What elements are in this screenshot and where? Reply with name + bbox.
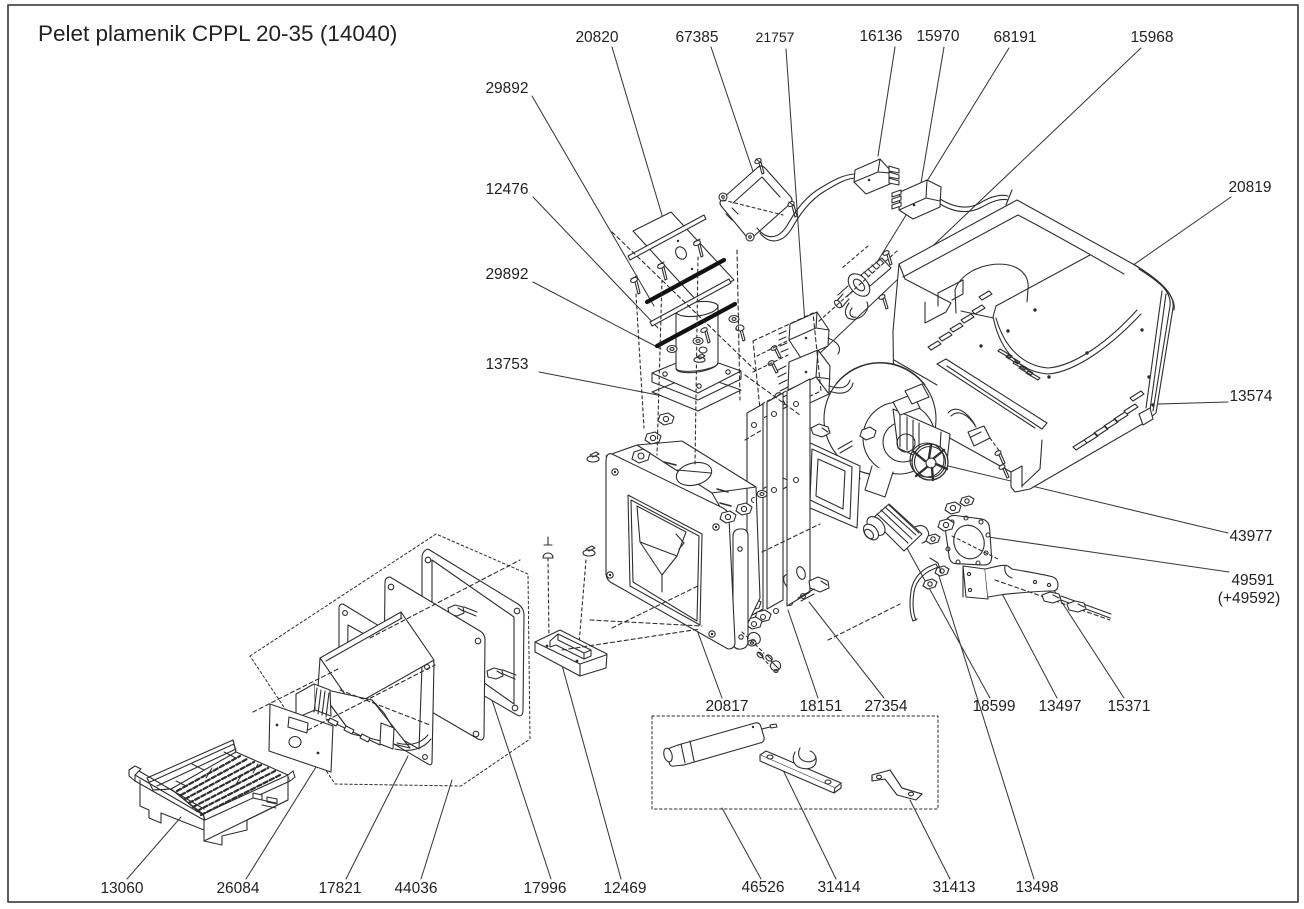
svg-text:13497: 13497 bbox=[1038, 698, 1081, 715]
svg-text:16136: 16136 bbox=[859, 28, 902, 45]
svg-text:15970: 15970 bbox=[916, 28, 959, 45]
svg-text:13498: 13498 bbox=[1015, 879, 1058, 896]
svg-text:12469: 12469 bbox=[603, 880, 646, 897]
svg-text:29892: 29892 bbox=[485, 80, 528, 97]
svg-text:12476: 12476 bbox=[485, 181, 528, 198]
svg-text:13574: 13574 bbox=[1229, 388, 1272, 405]
svg-text:(+49592): (+49592) bbox=[1218, 590, 1280, 607]
svg-text:20817: 20817 bbox=[705, 698, 748, 715]
svg-text:27354: 27354 bbox=[864, 698, 907, 715]
svg-text:31413: 31413 bbox=[932, 879, 975, 896]
svg-text:18151: 18151 bbox=[799, 698, 842, 715]
svg-text:20820: 20820 bbox=[575, 29, 618, 46]
svg-text:46526: 46526 bbox=[741, 879, 784, 896]
svg-text:18599: 18599 bbox=[972, 698, 1015, 715]
svg-text:44036: 44036 bbox=[394, 880, 437, 897]
svg-text:17821: 17821 bbox=[318, 880, 361, 897]
svg-text:17996: 17996 bbox=[523, 880, 566, 897]
svg-text:29892: 29892 bbox=[485, 266, 528, 283]
svg-text:15371: 15371 bbox=[1107, 698, 1150, 715]
svg-text:67385: 67385 bbox=[675, 29, 718, 46]
svg-text:31414: 31414 bbox=[817, 879, 860, 896]
svg-text:68191: 68191 bbox=[993, 29, 1036, 46]
svg-text:Pelet plamenik CPPL 20-35 (140: Pelet plamenik CPPL 20-35 (14040) bbox=[38, 21, 397, 46]
svg-text:15968: 15968 bbox=[1130, 29, 1173, 46]
svg-text:26084: 26084 bbox=[216, 880, 259, 897]
svg-text:49591: 49591 bbox=[1231, 572, 1274, 589]
svg-text:13060: 13060 bbox=[100, 880, 143, 897]
svg-text:21757: 21757 bbox=[756, 29, 795, 45]
svg-text:43977: 43977 bbox=[1229, 528, 1272, 545]
svg-text:20819: 20819 bbox=[1228, 179, 1271, 196]
svg-text:13753: 13753 bbox=[485, 356, 528, 373]
